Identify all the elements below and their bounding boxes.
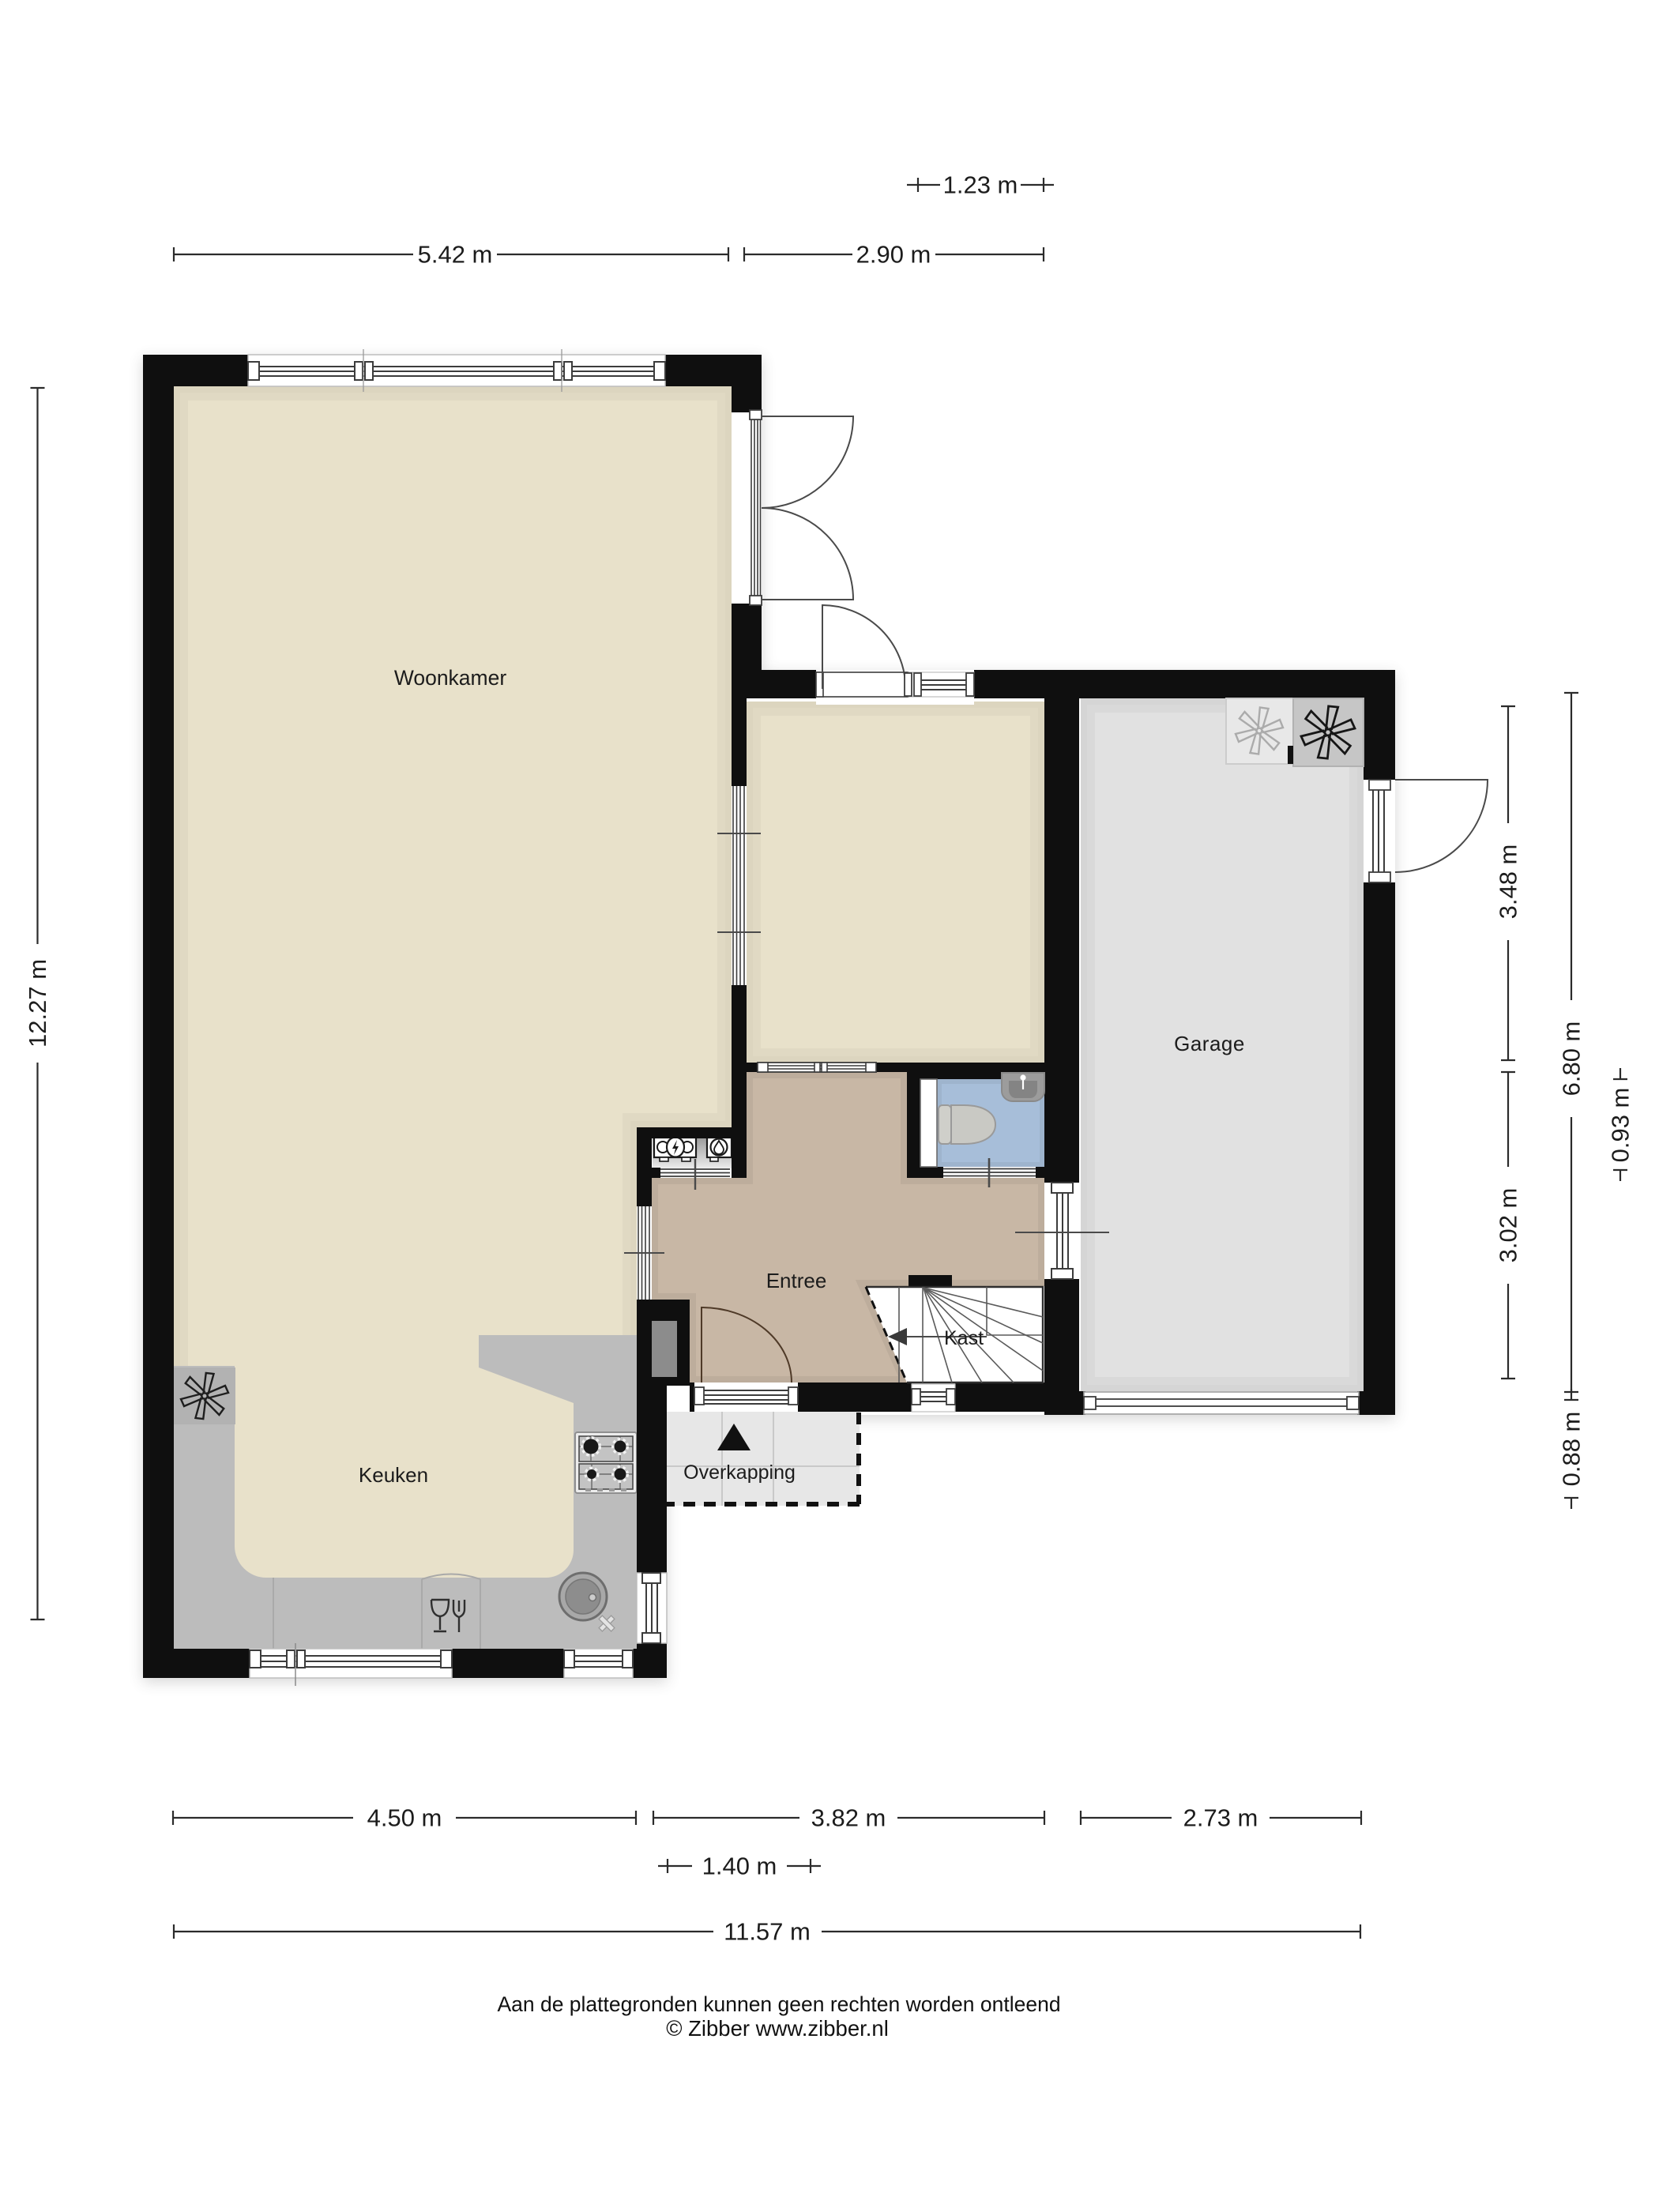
svg-text:11.57 m: 11.57 m — [724, 1918, 811, 1946]
svg-text:2.73 m: 2.73 m — [1183, 1804, 1258, 1832]
svg-text:3.48 m: 3.48 m — [1495, 845, 1522, 920]
svg-text:12.27 m: 12.27 m — [24, 959, 51, 1048]
svg-text:Woonkamer: Woonkamer — [394, 666, 507, 690]
svg-text:4.50 m: 4.50 m — [367, 1804, 442, 1832]
svg-text:1.23 m: 1.23 m — [943, 171, 1018, 199]
svg-text:6.80 m: 6.80 m — [1558, 1021, 1586, 1097]
svg-text:Keuken: Keuken — [359, 1463, 428, 1487]
svg-text:0.93 m: 0.93 m — [1607, 1088, 1635, 1163]
svg-text:Overkapping: Overkapping — [683, 1461, 796, 1484]
svg-text:© Zibber www.zibber.nl: © Zibber www.zibber.nl — [666, 2016, 889, 2041]
svg-text:3.82 m: 3.82 m — [811, 1804, 886, 1832]
svg-text:0.88 m: 0.88 m — [1558, 1412, 1586, 1487]
svg-text:3.02 m: 3.02 m — [1495, 1188, 1522, 1263]
svg-text:2.90 m: 2.90 m — [856, 241, 931, 269]
svg-text:1.40 m: 1.40 m — [702, 1853, 777, 1880]
svg-text:5.42 m: 5.42 m — [418, 241, 493, 269]
svg-text:Aan de plattegronden kunnen ge: Aan de plattegronden kunnen geen rechten… — [497, 1992, 1060, 2016]
svg-text:Kast: Kast — [944, 1327, 984, 1349]
svg-text:Entree: Entree — [766, 1269, 827, 1292]
svg-text:Garage: Garage — [1174, 1032, 1245, 1055]
